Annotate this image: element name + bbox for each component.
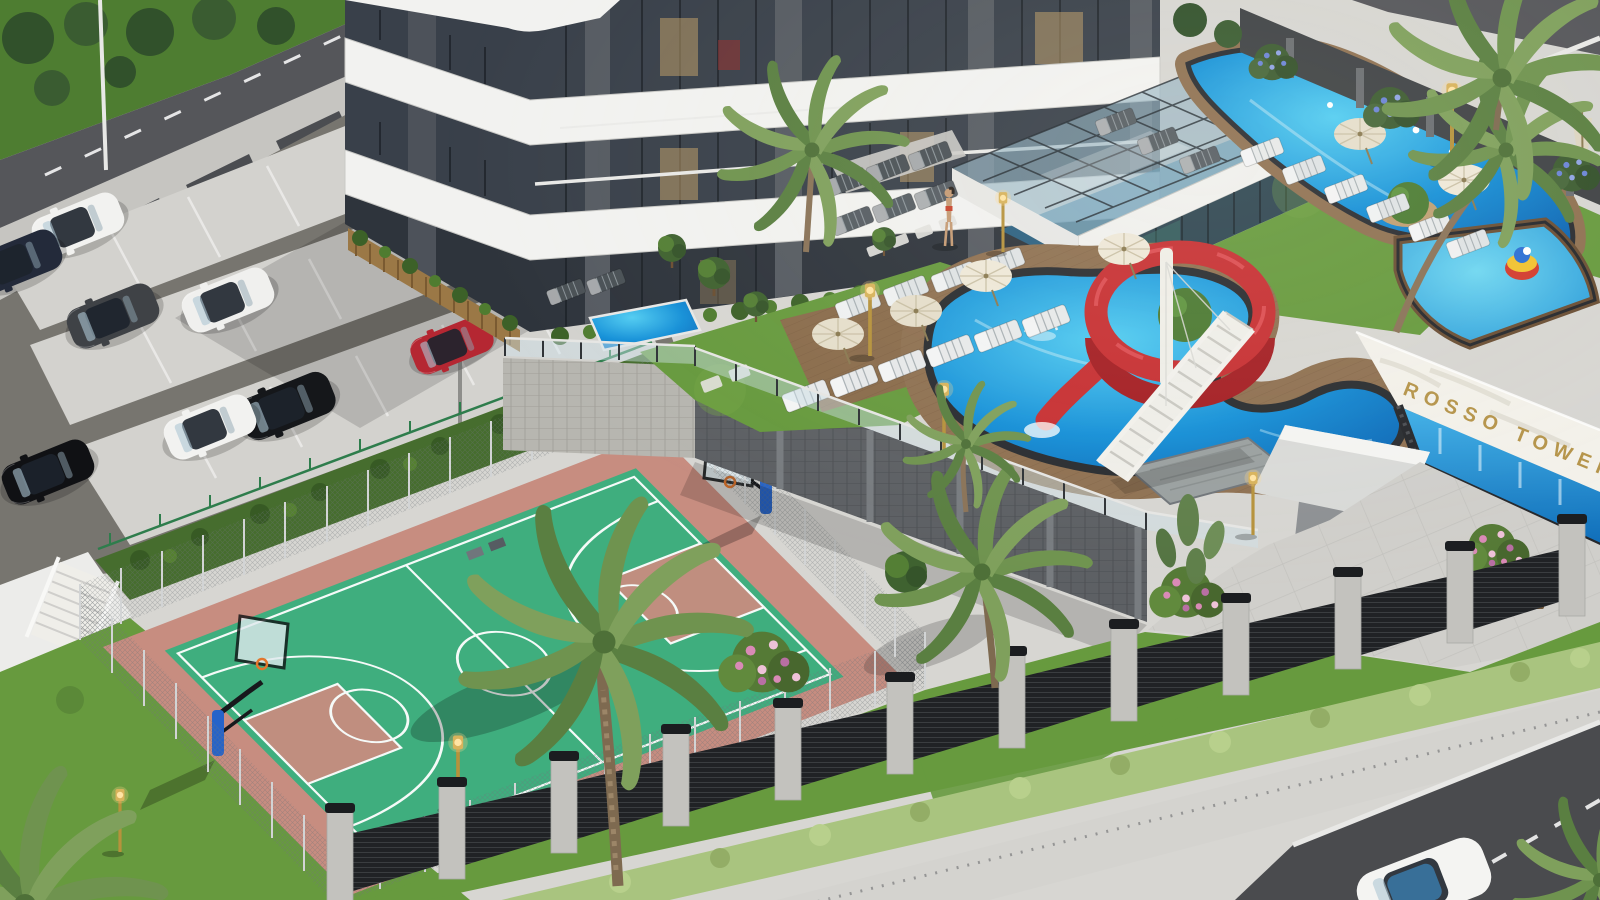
sunlight-overlay [0,0,1600,900]
scene-canvas: ROSSO TOWER [0,0,1600,900]
aerial-render: ROSSO TOWER [0,0,1600,900]
